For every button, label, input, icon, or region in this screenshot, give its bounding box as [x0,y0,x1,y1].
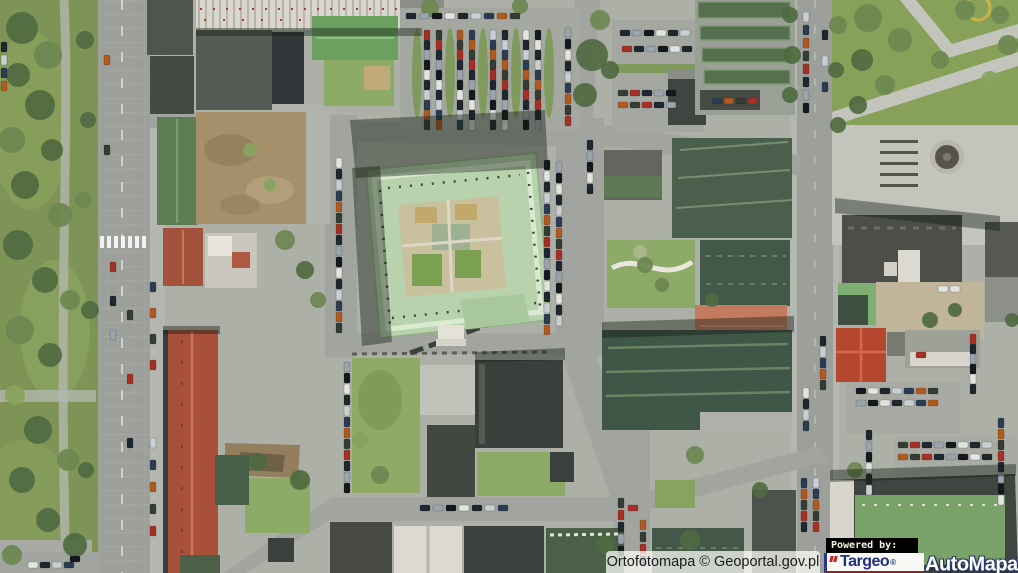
palace-building [366,153,550,346]
map-viewport: Ortofotomapa © Geoportal.gov.pl Powered … [0,0,1018,573]
targeo-wordmark: Targeo [840,554,889,570]
targeo-logo-icon [830,556,838,562]
aerial-map-canvas[interactable] [0,0,1018,573]
map-attribution[interactable]: Ortofotomapa © Geoportal.gov.pl [606,551,820,573]
targeo-logo[interactable]: Targeo ® [824,553,924,573]
targeo-registered-mark: ® [890,558,896,567]
automapa-wordmark: AutoMapa [925,554,1018,573]
automapa-logo[interactable]: AutoMapa® [925,548,1018,572]
powered-by-label: Powered by: [826,538,918,553]
